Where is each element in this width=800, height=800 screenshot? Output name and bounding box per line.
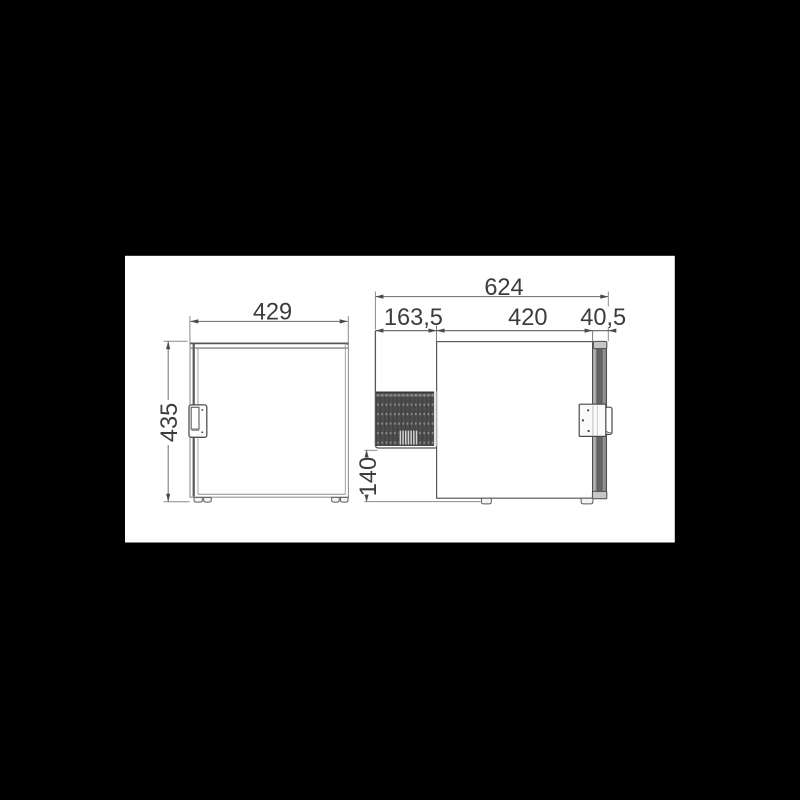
- svg-text:624: 624: [484, 275, 523, 301]
- svg-text:140: 140: [356, 457, 382, 496]
- svg-text:435: 435: [157, 403, 183, 442]
- svg-text:163,5: 163,5: [384, 305, 443, 331]
- svg-text:420: 420: [508, 305, 547, 331]
- svg-text:429: 429: [253, 299, 292, 325]
- svg-text:40,5: 40,5: [580, 305, 626, 331]
